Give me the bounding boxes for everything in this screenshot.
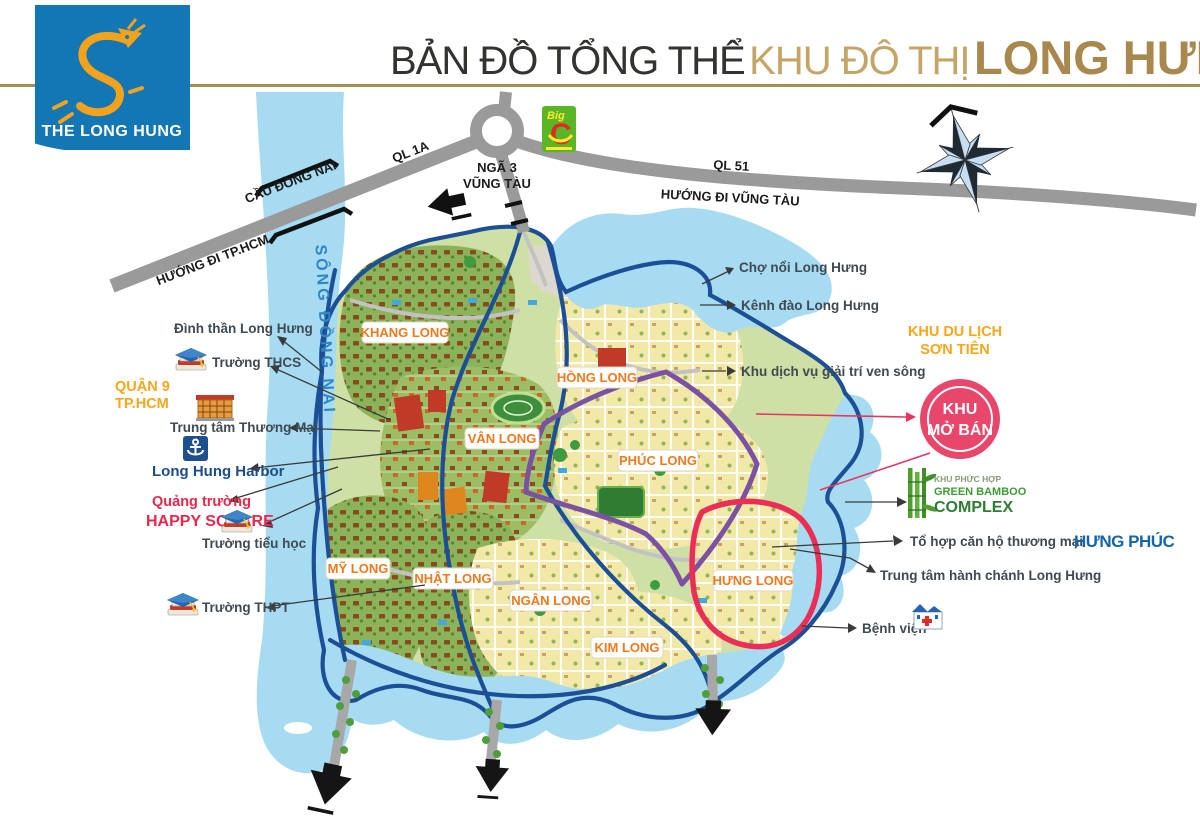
brand-name: THE LONG HUNG [42,123,183,140]
anchor-icon [183,436,208,461]
label-truong-tieu-hoc: Trường tiểu học [202,536,307,551]
chip-my-long: MỸ LONG [326,558,390,579]
label-son-tien-line1: KHU DU LỊCH [908,324,1002,340]
label-nga3-line1: NGÃ 3 [477,160,517,175]
label-quan9-line1: QUẬN 9 [115,377,170,395]
label-hung-phuc: HƯNG PHÚC [1074,532,1174,551]
chip-kim-long-label: KIM LONG [595,640,660,655]
big-c-text-c: C [550,118,572,151]
label-ql51: QL 51 [713,157,750,174]
chip-phuc-long: PHÚC LONG [618,450,698,471]
commercial-center-icon [196,395,234,421]
label-trung-tam-thuong-mai: Trung tâm Thương Mại [170,420,318,435]
chip-nhat-long-label: NHẬT LONG [414,571,491,586]
chip-hung-long-label: HƯNG LONG [713,573,794,588]
khu-mo-ban-badge: KHU MỞ BÁN [920,379,1000,459]
chip-hong-long: HỒNG LONG [557,367,637,388]
roundabout [476,110,518,152]
chip-hong-long-label: HỒNG LONG [557,370,637,385]
label-huong-di-vung-tau: HƯỚNG ĐI VŨNG TÀU [661,186,800,208]
page-title: BẢN ĐỒ TỔNG THỂ KHU ĐÔ THỊ LONG HƯNG [390,30,1190,85]
bamboo-line3: COMPLEX [934,499,1013,516]
label-to-hop-can-ho: Tổ hợp căn hộ thương mại [910,534,1083,549]
chip-nhat-long: NHẬT LONG [413,568,493,589]
school-thpt-icon [167,593,199,615]
chip-hung-long: HƯNG LONG [713,570,794,591]
chip-van-long-label: VÂN LONG [468,431,537,446]
label-son-tien-line2: SƠN TIÊN [920,340,990,358]
chip-kim-long: KIM LONG [591,637,663,658]
school-thcs-icon [175,348,207,370]
chip-ngan-long-label: NGÂN LONG [511,593,590,608]
title-part3: LONG HƯNG [974,31,1200,84]
south-arrow-mid-icon [473,758,509,800]
label-kenh-dao: Kênh đào Long Hưng [741,298,879,313]
masterplan-poster: Big C QL 1A CẦU ĐỒNG NAI HƯỚNG ĐI TP.HCM… [0,0,1200,839]
hospital-icon [912,604,942,629]
title-part1: BẢN ĐỒ TỔNG THỂ [390,39,745,83]
label-khu-dich-vu: Khu dịch vụ giải trí ven sông [741,364,926,379]
label-quan9-line2: TP.HCM [115,396,169,412]
khu-mo-ban-line1: KHU [943,401,978,418]
label-truong-thpt: Trường THPT [202,600,290,615]
chip-khang-long-label: KHANG LONG [361,325,450,340]
chip-my-long-label: MỸ LONG [328,561,389,576]
label-truong-thcs: Trường THCS [212,355,301,370]
khu-mo-ban-line2: MỞ BÁN [927,420,993,439]
chip-khang-long: KHANG LONG [361,322,450,343]
label-quang-truong-line1: Quảng trường [152,494,251,510]
chip-phuc-long-label: PHÚC LONG [619,453,697,468]
road-ql51 [514,140,1196,210]
label-cho-noi: Chợ nổi Long Hưng [739,260,867,275]
big-c-logo: Big C [542,106,576,152]
bamboo-line2: GREEN BAMBOO [934,486,1027,498]
chip-van-long: VÂN LONG [465,428,539,449]
compass-rose-icon [902,94,1027,225]
bamboo-line1: KHU PHỨC HỢP [934,473,1002,484]
label-hanh-chanh: Trung tâm hành chánh Long Hưng [880,568,1101,583]
title-part2: KHU ĐÔ THỊ [749,39,969,83]
label-nga3-line2: VŨNG TÀU [463,176,531,191]
label-quang-truong-line2: HAPPY SQUARE [146,513,274,530]
label-dinh-than: Đình thần Long Hưng [174,321,313,336]
chip-ngan-long: NGÂN LONG [510,590,592,611]
brand-logo: THE LONG HUNG [0,0,200,170]
green-bamboo-logo: KHU PHỨC HỢP GREEN BAMBOO COMPLEX [908,468,1027,518]
label-harbor: Long Hung Harbor [152,463,285,480]
